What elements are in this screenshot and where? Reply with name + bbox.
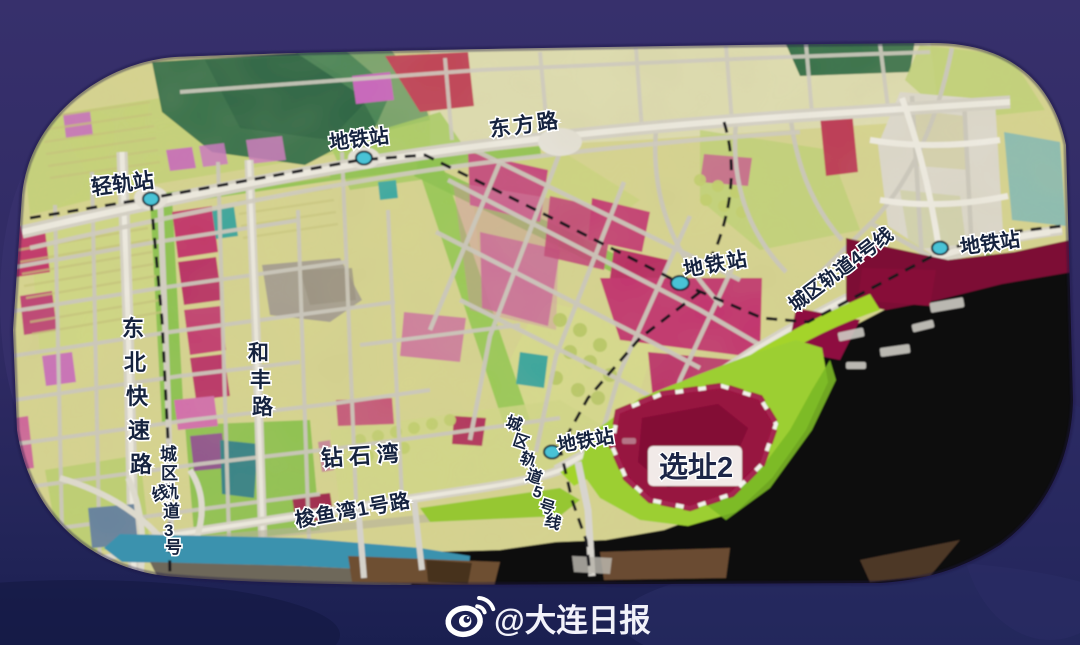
svg-text:路: 路 — [252, 395, 274, 419]
svg-text:和: 和 — [248, 342, 269, 365]
svg-text:选址2: 选址2 — [659, 451, 733, 484]
svg-text:区: 区 — [161, 464, 178, 483]
svg-text:快: 快 — [126, 384, 149, 409]
svg-text:@大连日报: @大连日报 — [494, 602, 651, 638]
svg-text:城: 城 — [160, 445, 177, 464]
svg-text:号: 号 — [165, 538, 182, 557]
svg-text:路: 路 — [130, 452, 153, 477]
svg-text:东: 东 — [122, 316, 144, 341]
svg-text:速: 速 — [128, 418, 150, 443]
svg-text:道: 道 — [163, 501, 180, 521]
svg-text:北: 北 — [124, 350, 146, 375]
svg-text:丰: 丰 — [250, 368, 271, 392]
